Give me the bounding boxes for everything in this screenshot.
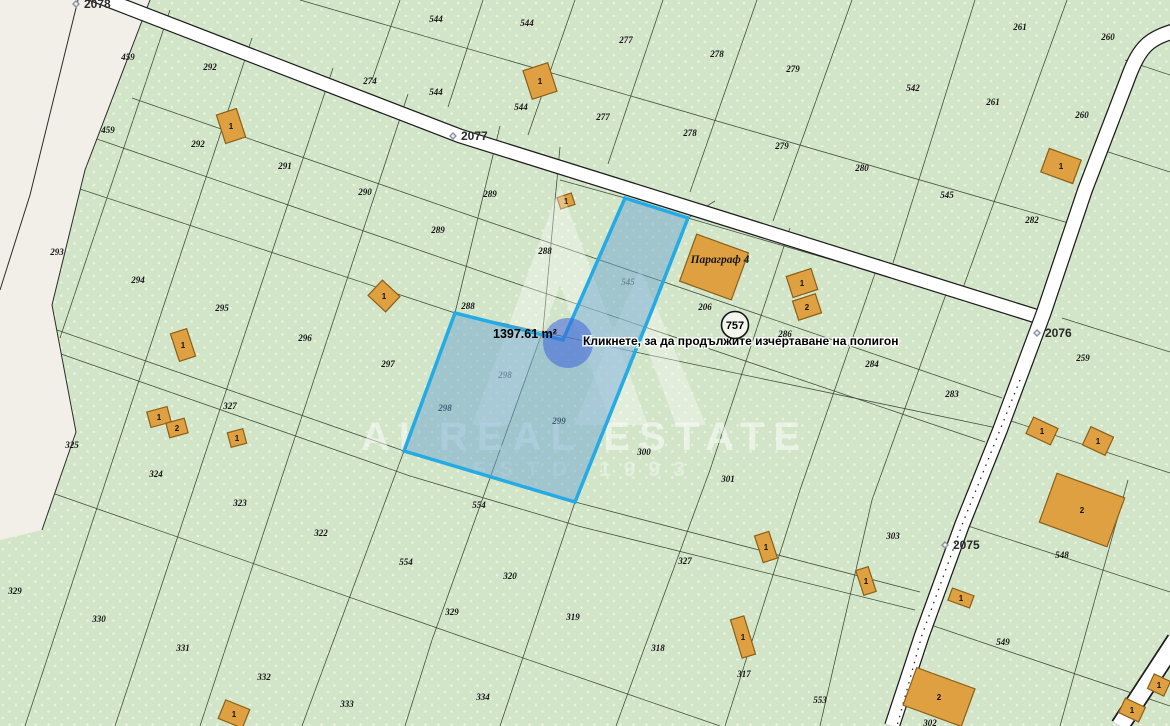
parcel-label: 325 bbox=[64, 440, 79, 450]
building-number: 1 bbox=[741, 633, 746, 642]
parcel-label: 329 bbox=[7, 586, 22, 596]
map-canvas[interactable]: 1111211121111112121111 AI REAL ESTATE ES… bbox=[0, 0, 1170, 726]
parcel-label: 206 bbox=[697, 302, 712, 312]
parcel-label: 259 bbox=[1075, 353, 1090, 363]
parcel-label: 545 bbox=[940, 190, 954, 200]
parcel-label: 317 bbox=[736, 669, 751, 679]
parcel-label: 291 bbox=[277, 161, 292, 171]
parcel-label: 554 bbox=[399, 557, 413, 567]
building-number: 1 bbox=[1096, 437, 1101, 446]
parcel-label: 290 bbox=[357, 187, 372, 197]
building-number: 1 bbox=[235, 434, 240, 443]
parcel-label: 260 bbox=[1100, 32, 1115, 42]
road-number: 2077 bbox=[461, 129, 488, 143]
parcel-label: 292 bbox=[202, 62, 217, 72]
parcel-label: 332 bbox=[256, 672, 271, 682]
parcel-label: 279 bbox=[774, 141, 789, 151]
parcel-label: 293 bbox=[49, 247, 64, 257]
area-measurement-label: 1397.61 m² bbox=[493, 327, 557, 341]
parcel-label: 324 bbox=[148, 469, 163, 479]
parcel-label: 277 bbox=[618, 35, 633, 45]
building-number: 1 bbox=[1157, 681, 1162, 690]
parcel-label: 329 bbox=[444, 607, 459, 617]
parcel-label: 297 bbox=[380, 359, 395, 369]
building-number: 1 bbox=[1059, 162, 1064, 171]
building-number: 1 bbox=[157, 413, 162, 422]
parcel-label: 289 bbox=[482, 189, 497, 199]
parcel-label: 544 bbox=[429, 87, 443, 97]
parcel-label: 288 bbox=[537, 246, 552, 256]
building-number: 2 bbox=[175, 424, 180, 433]
parcel-label: 301 bbox=[720, 474, 735, 484]
parcel-label: 278 bbox=[709, 49, 724, 59]
parcel-label: 303 bbox=[885, 531, 900, 541]
parcel-label: 284 bbox=[864, 359, 879, 369]
parcel-label: 289 bbox=[430, 225, 445, 235]
parcel-label: 554 bbox=[472, 500, 486, 510]
route-badge: 757 bbox=[722, 312, 749, 339]
building-number: 1 bbox=[800, 279, 805, 288]
parcel-label: 261 bbox=[1012, 22, 1027, 32]
building-number: 1 bbox=[538, 77, 543, 86]
building-number: 1 bbox=[1040, 427, 1045, 436]
cadastral-map[interactable]: 1111211121111112121111 AI REAL ESTATE ES… bbox=[0, 0, 1170, 726]
poi-label: Параграф 4 bbox=[690, 254, 750, 266]
parcel-label: 323 bbox=[232, 498, 247, 508]
parcel-label: 294 bbox=[130, 275, 145, 285]
parcel-label: 549 bbox=[996, 637, 1010, 647]
parcel-label: 279 bbox=[785, 64, 800, 74]
road-number: 2075 bbox=[953, 538, 980, 552]
parcel-label: 277 bbox=[595, 112, 610, 122]
parcel-label: 553 bbox=[813, 695, 827, 705]
parcel-label: 288 bbox=[460, 301, 475, 311]
building-number: 2 bbox=[937, 693, 942, 702]
parcel-label: 318 bbox=[650, 643, 665, 653]
road-number: 2078 bbox=[84, 0, 111, 11]
building-number: 1 bbox=[232, 710, 237, 719]
building-number: 1 bbox=[229, 122, 234, 131]
parcel-label: 278 bbox=[682, 128, 697, 138]
parcel-label: 334 bbox=[475, 692, 490, 702]
parcel-label: 280 bbox=[854, 163, 869, 173]
parcel-label: 542 bbox=[906, 83, 920, 93]
parcel-label: 300 bbox=[636, 447, 651, 457]
parcel-label: 322 bbox=[313, 528, 328, 538]
parcel-label: 548 bbox=[1055, 550, 1069, 560]
parcel-label: 296 bbox=[297, 333, 312, 343]
road-number: 2076 bbox=[1045, 326, 1072, 340]
building: 1 bbox=[227, 429, 246, 448]
building-number: 1 bbox=[959, 594, 964, 603]
parcel-label: 260 bbox=[1074, 110, 1089, 120]
route-badge-number: 757 bbox=[726, 320, 744, 332]
parcel-label: 544 bbox=[514, 102, 528, 112]
parcel-label: 333 bbox=[339, 699, 354, 709]
parcel-label: 331 bbox=[175, 643, 190, 653]
building-number: 1 bbox=[764, 543, 769, 552]
parcel-label: 544 bbox=[520, 18, 534, 28]
parcel-label: 283 bbox=[944, 389, 959, 399]
parcel-label: 261 bbox=[985, 97, 1000, 107]
building-number: 1 bbox=[382, 292, 387, 301]
parcel-label: 327 bbox=[677, 556, 692, 566]
building-number: 1 bbox=[1130, 706, 1135, 715]
building-number: 1 bbox=[181, 341, 186, 350]
parcel-label: 292 bbox=[190, 139, 205, 149]
building-number: 1 bbox=[864, 577, 869, 586]
building-number: 2 bbox=[805, 303, 810, 312]
parcel-label: 302 bbox=[922, 718, 937, 726]
parcel-label: 319 bbox=[565, 612, 580, 622]
parcel-label: 459 bbox=[100, 125, 115, 135]
parcel-label: 274 bbox=[362, 76, 377, 86]
parcel-label: 320 bbox=[502, 571, 517, 581]
parcel-label: 327 bbox=[222, 401, 237, 411]
building-number: 2 bbox=[1080, 506, 1085, 515]
parcel-label: 282 bbox=[1024, 215, 1039, 225]
parcel-label: 459 bbox=[120, 52, 135, 62]
parcel-label: 544 bbox=[429, 14, 443, 24]
parcel-label: 295 bbox=[214, 303, 229, 313]
parcel-label: 330 bbox=[91, 614, 106, 624]
